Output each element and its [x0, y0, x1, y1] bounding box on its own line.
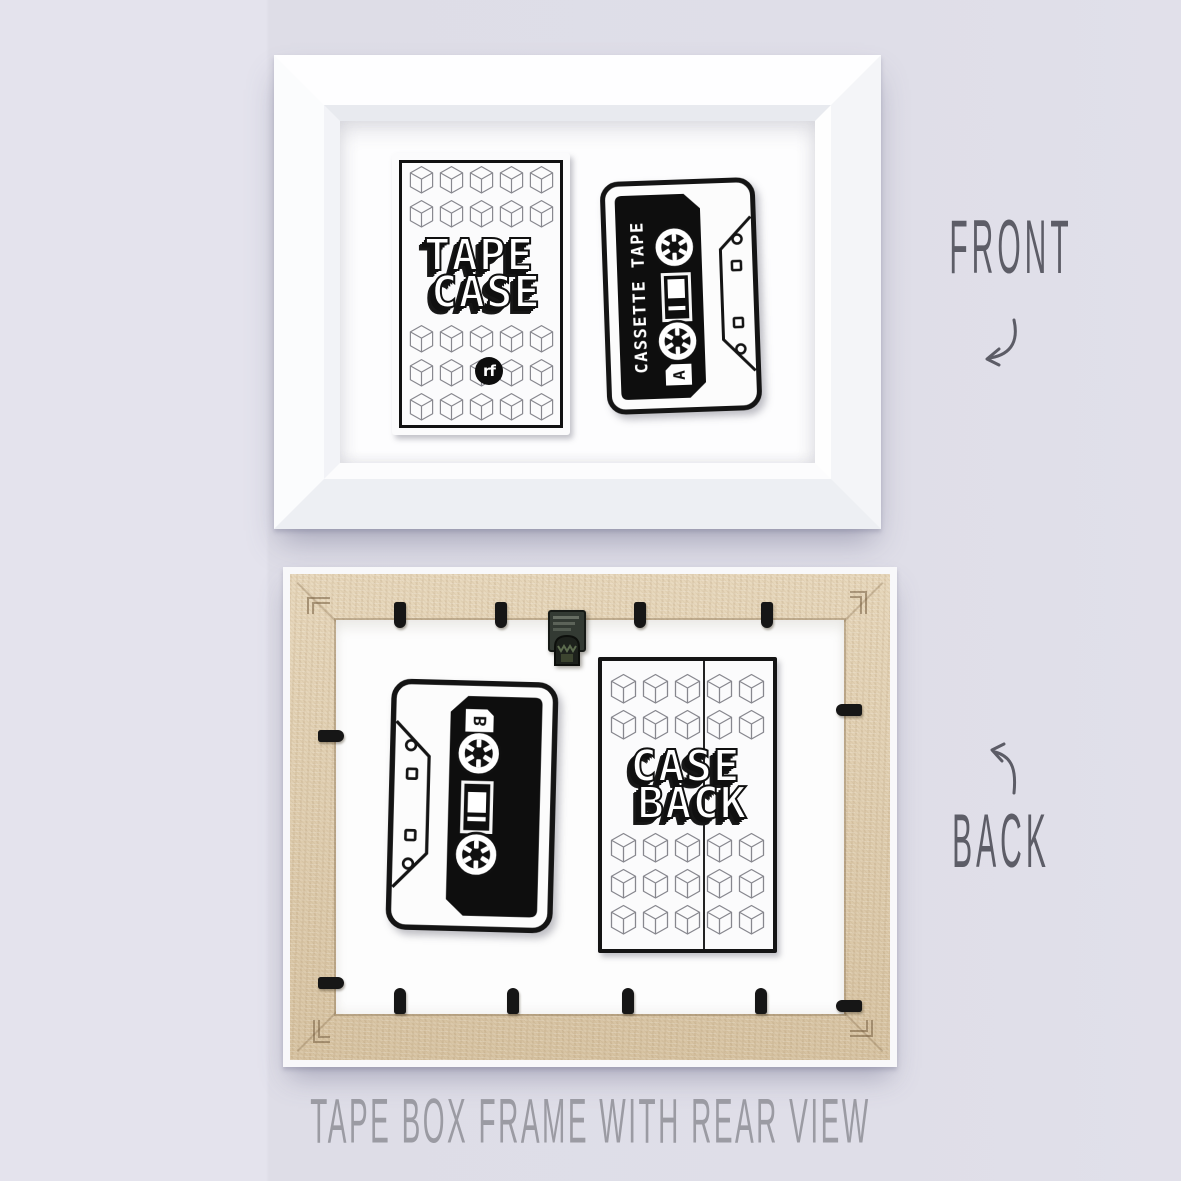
cube-icon: [674, 673, 701, 706]
tape-window-line: [467, 817, 485, 822]
cube-icon: [706, 868, 733, 901]
front-arrow-icon: [980, 316, 1024, 370]
cube-icon: [439, 199, 464, 230]
flexi-clip: [318, 977, 344, 989]
cube-icon: [529, 324, 554, 355]
screw-hole: [406, 740, 416, 750]
back-annotation: BACK: [936, 827, 1066, 861]
cube-icon: [642, 832, 669, 865]
square-hole: [405, 830, 415, 840]
cube-icon: [409, 358, 434, 389]
cube-icon: [499, 199, 524, 230]
back-picture-frame: B CASE BACK: [283, 567, 897, 1067]
cassette-tape-back: B: [385, 678, 560, 934]
cube-icon: [610, 673, 637, 706]
product-caption: TAPE BOX FRAME WITH REAR VIEW: [0, 1106, 1181, 1138]
cube-row: [610, 904, 765, 937]
back-frame-backing-board: B CASE BACK: [336, 620, 844, 1014]
cube-icon: [439, 324, 464, 355]
square-hole: [407, 769, 417, 779]
cube-icon: [738, 832, 765, 865]
reel-bottom: [657, 320, 698, 361]
cube-row: [610, 832, 765, 865]
square-hole: [732, 261, 741, 270]
cube-icon: [642, 673, 669, 706]
card-title-line2: BACK: [638, 784, 748, 824]
cube-icon: [469, 199, 494, 230]
side-b-letter: B: [471, 716, 491, 727]
reel-bottom: [454, 832, 498, 876]
case-back-card: CASE BACK: [598, 657, 777, 953]
sawtooth-hanger: [548, 610, 586, 667]
product-photo-stage: TAPE CASE rf: [0, 0, 1181, 1181]
back-arrow-icon: [986, 741, 1026, 797]
reel-top: [457, 731, 501, 775]
cube-icon: [738, 673, 765, 706]
cube-pattern-top: [409, 165, 554, 230]
front-picture-frame: TAPE CASE rf: [274, 55, 881, 529]
cube-row: [409, 324, 554, 355]
flexi-clip: [394, 602, 406, 628]
screw-hole: [732, 234, 741, 243]
cube-icon: [469, 392, 494, 423]
back-annotation-text: BACK: [952, 801, 1050, 888]
front-frame-mat: TAPE CASE rf: [340, 121, 815, 463]
cube-icon: [674, 832, 701, 865]
cube-icon: [529, 199, 554, 230]
screw-hole: [736, 344, 745, 353]
cube-icon: [674, 709, 701, 742]
cube-icon: [439, 358, 464, 389]
cube-icon: [499, 324, 524, 355]
cube-icon: [610, 709, 637, 742]
flexi-clip: [836, 704, 862, 716]
flexi-clip: [622, 988, 634, 1014]
cube-icon: [706, 832, 733, 865]
product-caption-text: TAPE BOX FRAME WITH REAR VIEW: [310, 1086, 870, 1158]
cube-icon: [610, 868, 637, 901]
cube-icon: [706, 904, 733, 937]
flexi-clip: [634, 602, 646, 628]
front-annotation: FRONT: [941, 233, 1081, 267]
corner-hardware-mark: [304, 1016, 334, 1046]
cube-icon: [499, 392, 524, 423]
cube-icon: [529, 165, 554, 196]
card-title: CASE BACK: [633, 747, 743, 826]
front-annotation-text: FRONT: [949, 207, 1072, 294]
cube-row: [610, 709, 765, 742]
card-content: TAPE CASE rf: [404, 165, 558, 423]
cube-row: [610, 868, 765, 901]
cube-icon: [529, 358, 554, 389]
cassette-tape-front: CASSETTE TAPE A: [599, 176, 763, 415]
flexi-clip: [507, 988, 519, 1014]
cube-icon: [706, 709, 733, 742]
flexi-clip: [836, 1000, 862, 1012]
screw-hole: [403, 859, 413, 869]
side-a-letter: A: [670, 370, 689, 381]
tape-window-line: [668, 306, 685, 311]
tape-window-fill: [468, 792, 487, 813]
cube-icon: [409, 165, 434, 196]
cube-row: [409, 165, 554, 196]
cube-pattern-bottom: [610, 832, 765, 937]
card-content: CASE BACK: [612, 673, 763, 937]
cube-icon: [610, 904, 637, 937]
cube-icon: [529, 392, 554, 423]
cube-icon: [610, 832, 637, 865]
flexi-clip: [394, 988, 406, 1014]
cube-icon: [469, 165, 494, 196]
reel-top: [654, 227, 695, 268]
cube-pattern-top: [610, 673, 765, 742]
cube-icon: [738, 868, 765, 901]
cube-icon: [642, 904, 669, 937]
flexi-clip: [318, 730, 344, 742]
square-hole: [734, 318, 743, 327]
card-title-line2: CASE: [431, 273, 541, 313]
cube-icon: [499, 165, 524, 196]
cube-icon: [674, 904, 701, 937]
cube-icon: [642, 709, 669, 742]
cube-row: [409, 199, 554, 230]
cube-icon: [409, 199, 434, 230]
card-title: TAPE CASE: [426, 236, 536, 315]
cube-row: [409, 392, 554, 423]
cassette-label: [445, 696, 542, 918]
cube-row: [610, 673, 765, 706]
cube-icon: [738, 904, 765, 937]
cube-icon: [469, 324, 494, 355]
corner-hardware-mark: [846, 588, 876, 618]
cube-icon: [439, 392, 464, 423]
flexi-clip: [495, 602, 507, 628]
cube-pattern-bottom-wrap: rf: [409, 324, 554, 423]
corner-hardware-mark: [846, 1016, 876, 1046]
cube-icon: [706, 673, 733, 706]
flexi-clip: [761, 602, 773, 628]
tape-case-card: TAPE CASE rf: [392, 153, 570, 435]
tape-window-fill: [667, 279, 685, 299]
cube-icon: [439, 165, 464, 196]
cube-icon: [409, 392, 434, 423]
rf-logo-badge: rf: [475, 357, 503, 385]
cube-icon: [642, 868, 669, 901]
corner-hardware-mark: [304, 588, 334, 618]
cube-icon: [674, 868, 701, 901]
cube-icon: [409, 324, 434, 355]
flexi-clip: [755, 988, 767, 1014]
cube-icon: [738, 709, 765, 742]
